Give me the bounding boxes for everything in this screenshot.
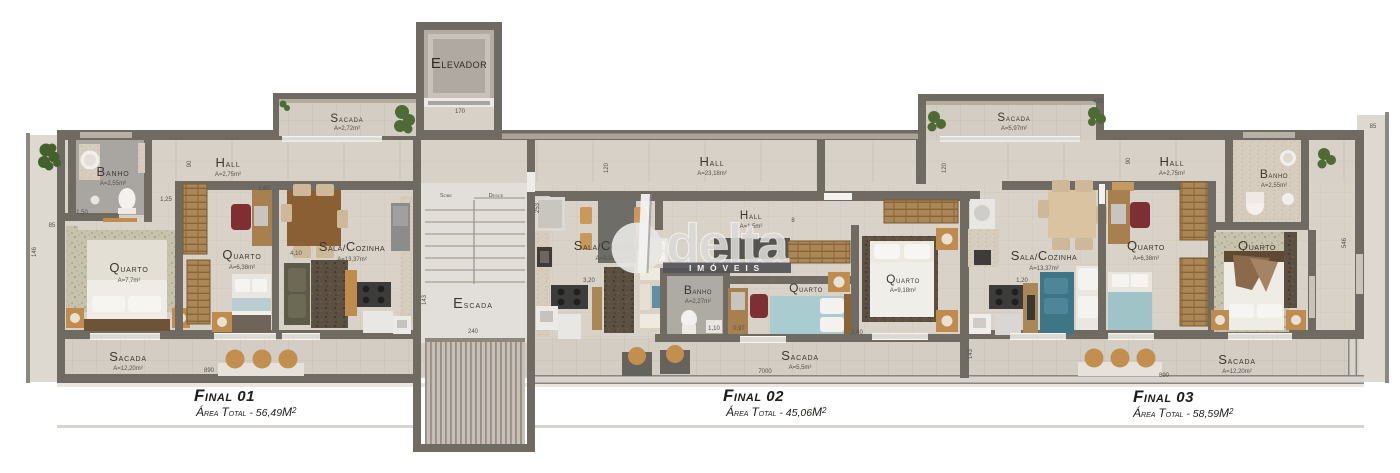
svg-text:1,60: 1,60 [258, 186, 270, 192]
svg-text:240: 240 [468, 329, 479, 335]
svg-text:1,25: 1,25 [160, 197, 172, 203]
svg-text:A=9,18m²: A=9,18m² [890, 288, 916, 294]
svg-text:85: 85 [1370, 124, 1377, 130]
svg-text:A=5,5m²: A=5,5m² [789, 365, 812, 371]
svg-text:546: 546 [1342, 237, 1348, 248]
svg-text:90: 90 [1126, 157, 1132, 164]
svg-text:2,40: 2,40 [851, 330, 863, 336]
svg-text:A=23,18m²: A=23,18m² [697, 171, 727, 177]
svg-text:90: 90 [187, 160, 193, 167]
svg-text:Banho: Banho [1260, 167, 1288, 181]
svg-text:120: 120 [942, 162, 948, 173]
svg-text:Área Total - 56,49M2: Área Total - 56,49M2 [195, 404, 297, 419]
svg-text:A=12,20m²: A=12,20m² [113, 366, 143, 372]
svg-text:A=6,38m²: A=6,38m² [229, 265, 255, 271]
svg-text:143: 143 [422, 294, 428, 305]
svg-text:Desce: Desce [489, 193, 504, 199]
svg-text:Sacada: Sacada [997, 112, 1030, 124]
svg-text:A=5,97m²: A=5,97m² [1001, 126, 1027, 132]
svg-text:Elevador: Elevador [431, 55, 487, 72]
svg-text:420: 420 [1093, 99, 1104, 105]
svg-text:3,20: 3,20 [583, 278, 595, 284]
svg-text:A=6,38m²: A=6,38m² [1133, 256, 1159, 262]
svg-text:0,97: 0,97 [733, 326, 745, 332]
svg-text:Sacada: Sacada [330, 113, 363, 125]
svg-text:890: 890 [1159, 373, 1170, 379]
svg-text:Final 03: Final 03 [1133, 387, 1194, 406]
svg-text:1,10: 1,10 [708, 326, 720, 332]
svg-text:Quarto: Quarto [789, 281, 823, 295]
svg-text:A=12,20m²: A=12,20m² [1222, 369, 1252, 375]
svg-text:Quarto: Quarto [886, 272, 920, 286]
svg-text:170: 170 [455, 109, 466, 115]
svg-text:Sobe: Sobe [440, 193, 452, 199]
svg-text:120: 120 [604, 162, 610, 173]
svg-text:Final 02: Final 02 [723, 386, 784, 405]
svg-text:A=2,75m²: A=2,75m² [1159, 171, 1185, 177]
svg-text:A=2,27m²: A=2,27m² [685, 299, 711, 305]
svg-text:Área Total - 58,59M2: Área Total - 58,59M2 [1132, 405, 1234, 420]
svg-text:7000: 7000 [758, 369, 772, 375]
svg-text:1,50: 1,50 [76, 210, 88, 216]
svg-text:85: 85 [49, 223, 56, 229]
svg-text:A=2,55m²: A=2,55m² [100, 181, 126, 187]
svg-text:A=13,37m²: A=13,37m² [1029, 266, 1059, 272]
svg-text:146: 146 [32, 246, 38, 257]
svg-text:Área Total - 45,06M2: Área Total - 45,06M2 [725, 404, 827, 419]
svg-text:IMÓVEIS: IMÓVEIS [689, 262, 765, 273]
svg-text:890: 890 [204, 368, 215, 374]
svg-text:Banho: Banho [684, 283, 712, 297]
svg-text:A=2,55m²: A=2,55m² [1261, 183, 1287, 189]
svg-text:A=2,72m²: A=2,72m² [334, 126, 360, 132]
svg-text:4,10: 4,10 [290, 251, 302, 257]
svg-text:143: 143 [968, 348, 974, 359]
svg-text:A=7,7m²: A=7,7m² [118, 278, 141, 284]
svg-text:1,20: 1,20 [1016, 278, 1028, 284]
svg-text:Escada: Escada [453, 296, 493, 312]
svg-text:Final 01: Final 01 [194, 386, 255, 405]
svg-text:253: 253 [535, 202, 541, 213]
svg-text:A=2,75m²: A=2,75m² [215, 172, 241, 178]
